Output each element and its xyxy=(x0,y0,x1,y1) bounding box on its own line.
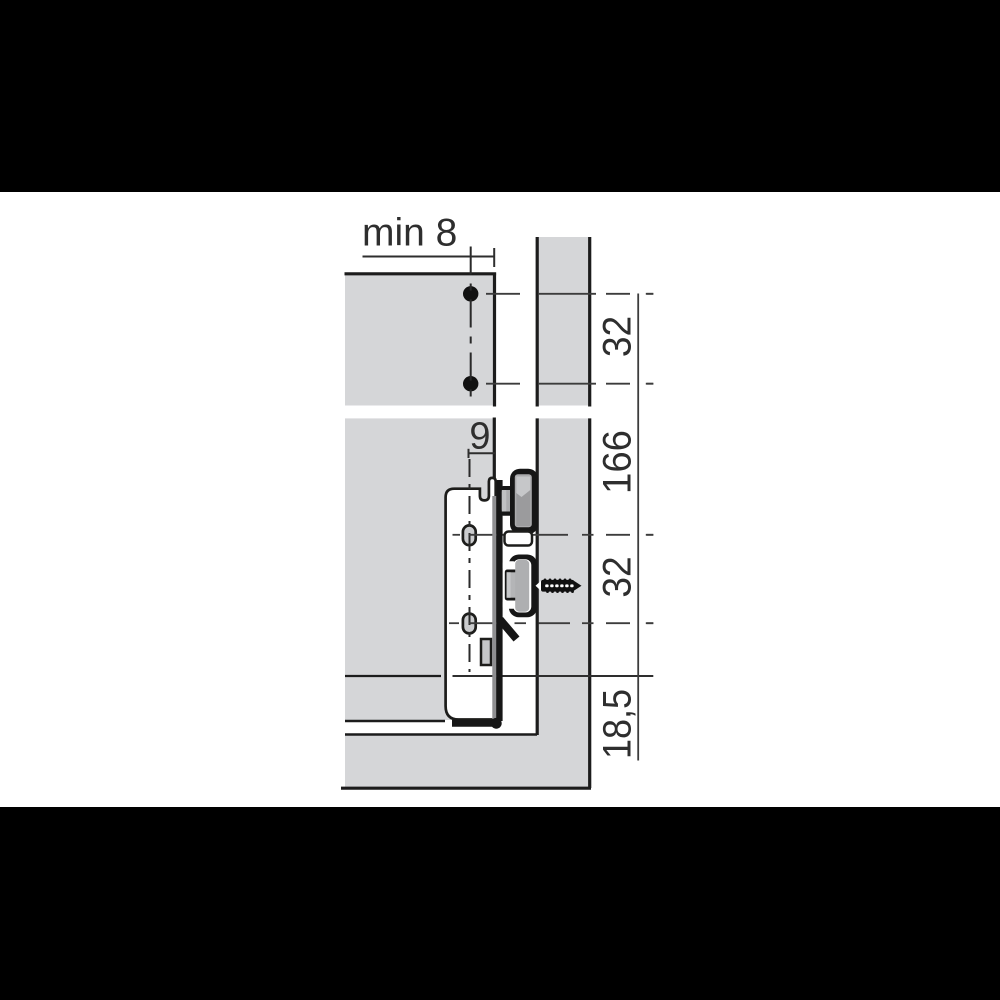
svg-text:min 8: min 8 xyxy=(362,212,457,255)
svg-text:9: 9 xyxy=(469,416,490,458)
svg-text:18,5: 18,5 xyxy=(596,689,640,759)
svg-text:32: 32 xyxy=(595,556,640,597)
svg-text:32: 32 xyxy=(595,316,640,357)
svg-text:166: 166 xyxy=(596,430,640,494)
